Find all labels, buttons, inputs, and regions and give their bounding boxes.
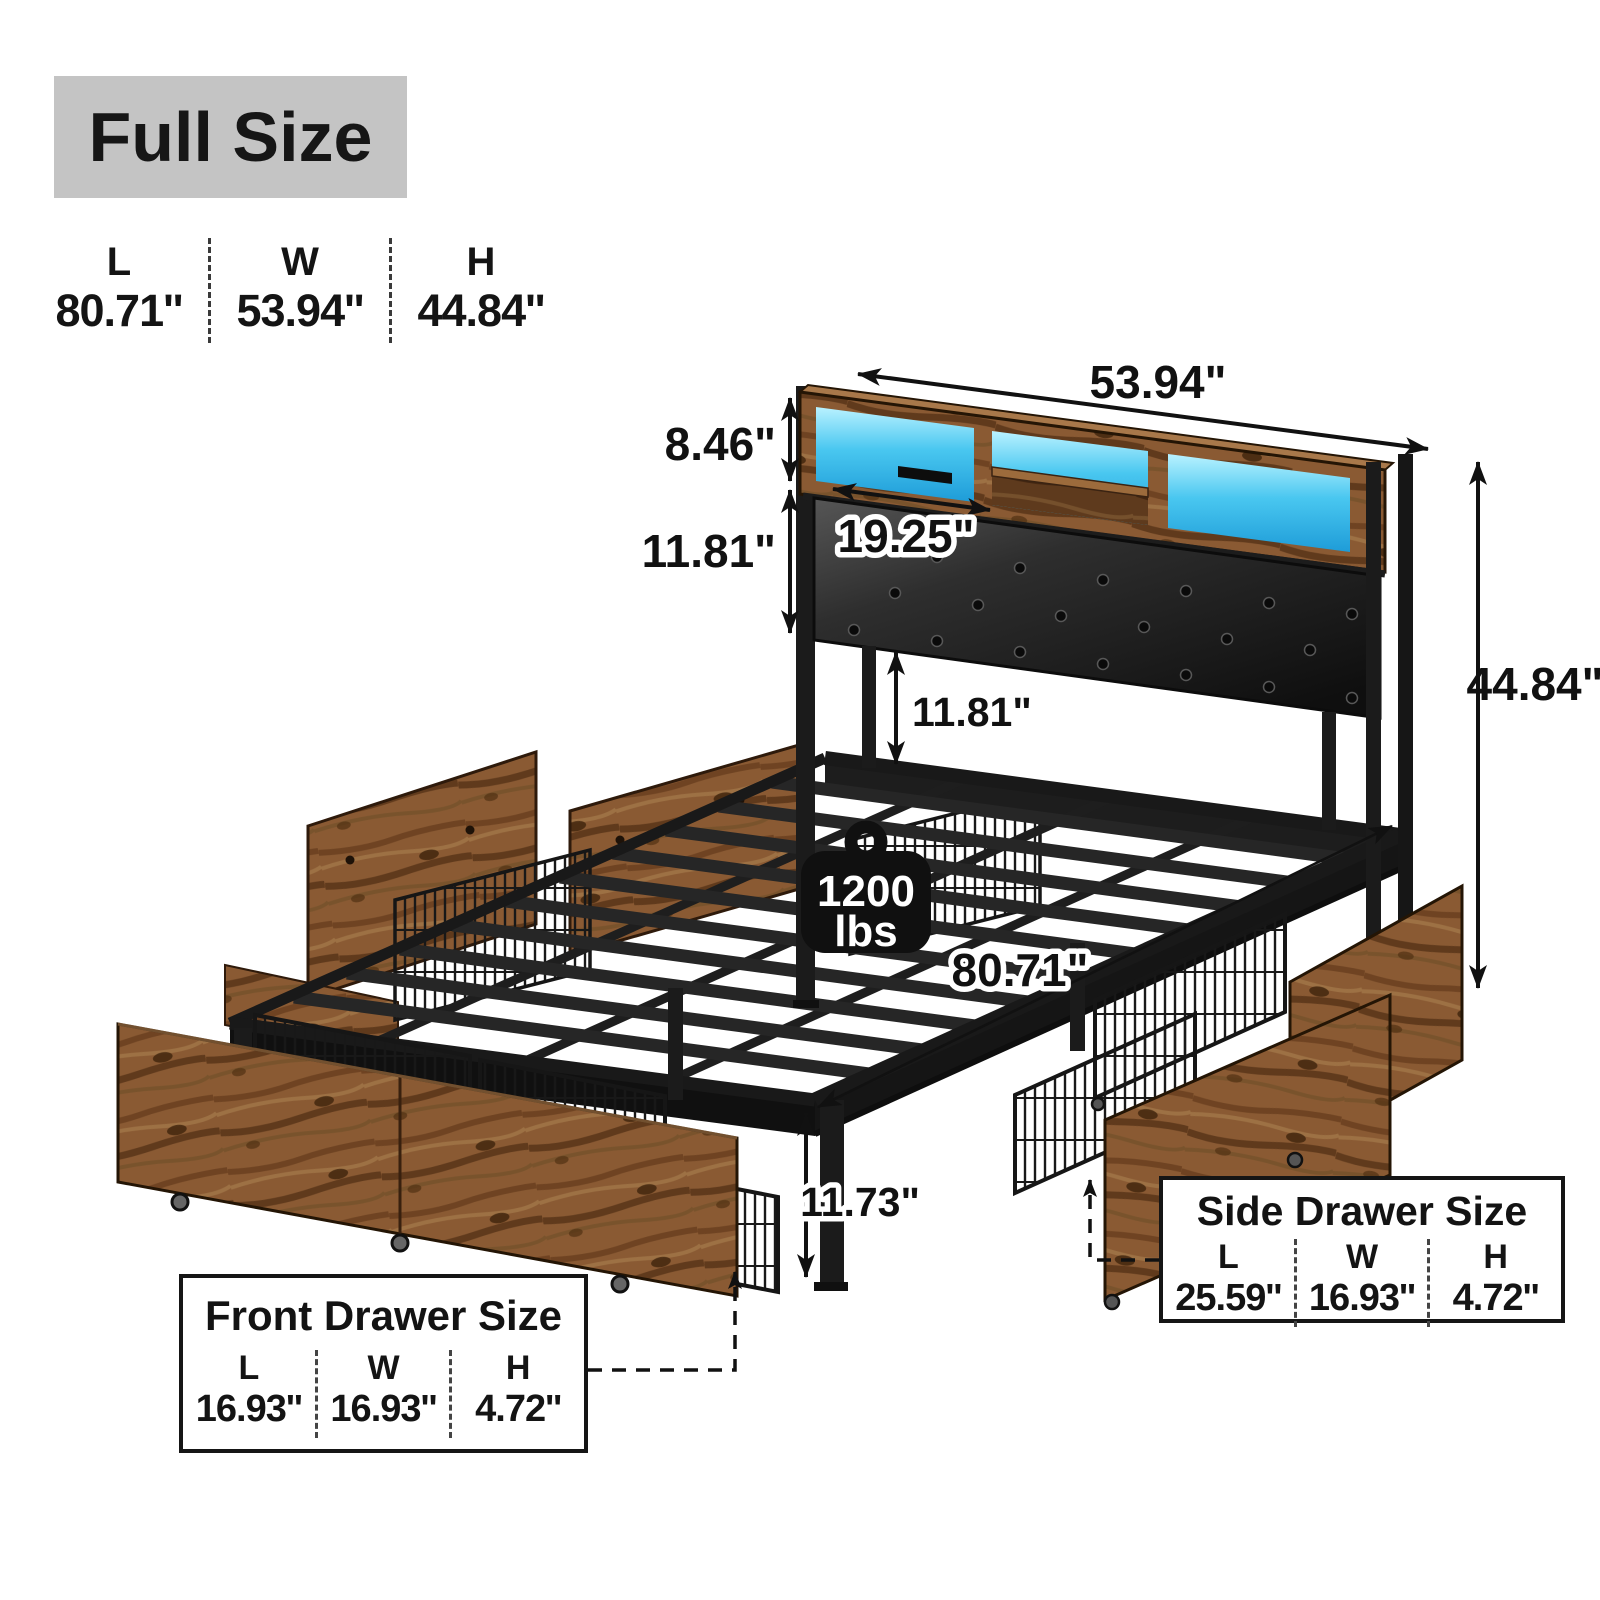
- headboard-inner-post: [862, 646, 876, 768]
- dim-value: 16.93'': [1299, 1276, 1426, 1321]
- dim-headboard-width: 53.94": [1090, 356, 1227, 408]
- dim-axis-label: L: [185, 1350, 313, 1387]
- caster-wheel: [1288, 1153, 1302, 1167]
- dim-hutch-height: 8.46": [665, 418, 776, 470]
- screw-icon: [466, 826, 475, 835]
- front-drawer-dim-width: W 16.93'': [315, 1350, 450, 1438]
- dim-axis-label: L: [1165, 1239, 1292, 1276]
- headboard-right-post: [1366, 462, 1381, 1007]
- dim-headboard-panel-height: 11.81": [642, 525, 776, 577]
- front-drawer-size-box: Front Drawer Size L 16.93'' W 16.93'' H …: [179, 1274, 588, 1453]
- dim-value: 4.72'': [454, 1387, 582, 1432]
- product-dimension-diagram: 1200 lbs 53.94" 8.46" 11.81" 19.25" 11.8…: [0, 0, 1600, 1600]
- caster-wheel: [1092, 1098, 1104, 1110]
- front-drawer-dim-length: L 16.93'': [183, 1350, 315, 1438]
- caster-wheel: [172, 1194, 188, 1210]
- overall-dimensions: L 80.71'' W 53.94'' H 44.84'': [30, 238, 570, 343]
- screw-icon: [346, 856, 355, 865]
- dim-headboard-clearance: 11.81": [912, 689, 1032, 735]
- dim-axis-label: W: [211, 240, 389, 285]
- dim-value: 16.93'': [320, 1387, 448, 1432]
- dim-value: 16.93'': [185, 1387, 313, 1432]
- leg-foot-pad: [793, 1000, 819, 1008]
- size-badge: Full Size: [54, 76, 407, 198]
- dim-axis-label: H: [454, 1350, 582, 1387]
- front-drawer-dimensions: L 16.93'' W 16.93'' H 4.72'': [183, 1350, 584, 1438]
- front-drawer-size-title: Front Drawer Size: [183, 1292, 584, 1340]
- dim-value: 80.71'': [30, 285, 208, 337]
- overall-dim-width: W 53.94'': [208, 238, 389, 343]
- dim-value: 4.72'': [1432, 1276, 1559, 1321]
- weight-capacity-unit: lbs: [834, 907, 898, 956]
- center-support-leg: [668, 988, 683, 1100]
- dim-axis-label: H: [392, 240, 570, 285]
- dim-value: 25.59'': [1165, 1276, 1292, 1321]
- overall-dim-length: L 80.71'': [30, 238, 208, 343]
- side-drawer-dim-height: H 4.72'': [1427, 1239, 1561, 1327]
- dim-axis-label: W: [1299, 1239, 1426, 1276]
- caster-wheel: [392, 1235, 408, 1251]
- dim-axis-label: H: [1432, 1239, 1559, 1276]
- front-drawer-dim-height: H 4.72'': [449, 1350, 584, 1438]
- caster-wheel: [612, 1276, 628, 1292]
- dim-axis-label: L: [30, 240, 208, 285]
- dim-bed-length: 80.71": [952, 944, 1089, 996]
- side-drawer-size-box: Side Drawer Size L 25.59'' W 16.93'' H 4…: [1159, 1176, 1565, 1323]
- dim-underbed-clearance: 11.73": [800, 1179, 920, 1225]
- dim-axis-label: W: [320, 1350, 448, 1387]
- side-drawer-dimensions: L 25.59'' W 16.93'' H 4.72'': [1163, 1239, 1561, 1327]
- dim-overall-height: 44.84": [1467, 658, 1600, 710]
- side-drawer-size-title: Side Drawer Size: [1163, 1188, 1561, 1235]
- caster-wheel: [1105, 1295, 1119, 1309]
- dim-value: 44.84'': [392, 285, 570, 337]
- dim-value: 53.94'': [211, 285, 389, 337]
- side-drawer-dim-width: W 16.93'': [1294, 1239, 1428, 1327]
- overall-dim-height: H 44.84'': [389, 238, 570, 343]
- side-drawer-dim-length: L 25.59'': [1163, 1239, 1294, 1327]
- dim-hutch-opening-width: 19.25": [838, 510, 975, 562]
- headboard-inner-post: [1322, 712, 1336, 830]
